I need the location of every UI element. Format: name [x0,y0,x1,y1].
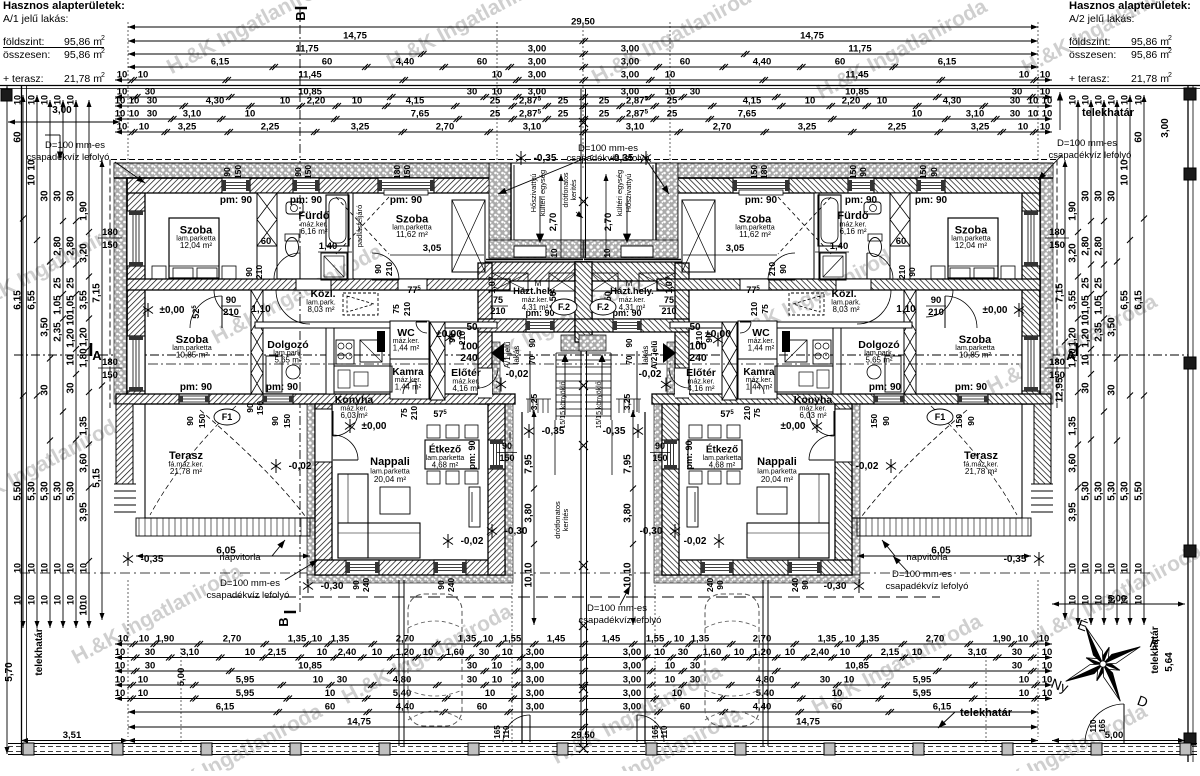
svg-text:+ terasz:: + terasz: [1069,73,1110,85]
svg-text:10: 10 [1081,354,1092,366]
svg-text:3,20: 3,20 [1068,243,1079,263]
svg-text:3,10: 3,10 [523,122,542,133]
svg-text:4,40: 4,40 [396,57,415,68]
svg-text:75: 75 [399,408,409,418]
svg-text:10: 10 [1068,563,1078,573]
svg-text:90: 90 [931,295,942,306]
svg-text:12,04 m²: 12,04 m² [180,241,213,250]
svg-text:6,03 m²: 6,03 m² [799,411,826,420]
svg-text:240: 240 [446,578,456,592]
svg-text:10,85 m²: 10,85 m² [959,351,992,360]
svg-text:10: 10 [138,675,149,686]
svg-text:30: 30 [1012,647,1023,658]
svg-text:210: 210 [928,307,944,318]
svg-text:10,10: 10,10 [524,562,535,587]
svg-text:drótfonatos: drótfonatos [563,172,570,208]
svg-text:3,25: 3,25 [351,122,370,133]
svg-text:10: 10 [1028,96,1039,107]
svg-text:F.2: F.2 [597,302,609,312]
svg-text:3,25: 3,25 [178,122,197,133]
svg-text:5,30: 5,30 [1094,481,1105,501]
svg-text:2,70: 2,70 [436,122,455,133]
svg-text:4,68 m²: 4,68 m² [709,461,736,470]
svg-text:10: 10 [13,595,23,605]
svg-text:210: 210 [384,262,394,276]
svg-text:10: 10 [1068,95,1078,105]
svg-text:100: 100 [460,341,478,353]
svg-text:30: 30 [147,96,158,107]
svg-text:2,70: 2,70 [548,213,559,232]
svg-text:1,35: 1,35 [861,634,880,645]
svg-text:90: 90 [351,580,361,590]
svg-text:2,20: 2,20 [842,96,861,107]
svg-text:150: 150 [749,165,759,179]
svg-text:A/2 jelű: A/2 jelű [650,341,659,370]
svg-text:2,35: 2,35 [53,322,64,342]
svg-text:1,20: 1,20 [1081,328,1092,348]
svg-text:90: 90 [226,295,237,306]
svg-text:3,00: 3,00 [528,44,547,55]
svg-text:30: 30 [678,647,689,658]
svg-text:60: 60 [13,131,24,143]
svg-text:10: 10 [805,96,816,107]
svg-text:1,07: 1,07 [664,276,674,294]
svg-text:180: 180 [102,227,118,238]
svg-text:90: 90 [502,441,512,451]
svg-text:210: 210 [223,307,239,318]
svg-text:4,30: 4,30 [206,96,225,107]
svg-text:3,00: 3,00 [623,688,642,699]
svg-text:3,60: 3,60 [1068,453,1079,473]
svg-text:3,00: 3,00 [623,675,642,686]
svg-text:10: 10 [1094,563,1104,573]
svg-text:90: 90 [293,167,303,177]
svg-text:180: 180 [102,357,118,368]
svg-text:25: 25 [53,277,64,289]
svg-text:D=100 mm-es: D=100 mm-es [587,603,647,614]
svg-text:10: 10 [325,688,336,699]
svg-text:75: 75 [664,295,674,305]
svg-text:25: 25 [66,277,77,289]
svg-text:Étkező: Étkező [429,443,461,456]
svg-text:90: 90 [966,416,976,426]
svg-text:10: 10 [1018,122,1029,133]
svg-text:60: 60 [325,702,336,713]
svg-text:lakás: lakás [641,346,650,365]
svg-text:1,45: 1,45 [547,634,566,645]
svg-text:3,10: 3,10 [966,109,985,120]
svg-text:2,25: 2,25 [261,122,280,133]
svg-text:150: 150 [102,370,118,381]
svg-text:3,05: 3,05 [726,243,745,254]
svg-text:3,25: 3,25 [798,122,817,133]
svg-text:1,07: 1,07 [487,276,497,294]
svg-text:25: 25 [667,96,678,107]
svg-text:14,75: 14,75 [800,31,824,42]
svg-text:2,70: 2,70 [603,213,614,232]
svg-text:10: 10 [115,661,126,672]
svg-text:150: 150 [499,453,514,463]
svg-text:2,70: 2,70 [223,634,242,645]
svg-text:2,25: 2,25 [888,122,907,133]
svg-text:90: 90 [778,264,788,274]
svg-text:3,00: 3,00 [528,57,547,68]
svg-text:6,16 m²: 6,16 m² [839,227,866,236]
svg-text:3,00: 3,00 [526,675,545,686]
svg-text:10: 10 [674,634,685,645]
svg-text:1,40: 1,40 [830,241,849,252]
svg-text:90: 90 [245,403,255,413]
svg-text:2: 2 [101,35,105,42]
svg-text:60: 60 [477,57,488,68]
svg-text:95,86 m: 95,86 m [64,49,102,61]
svg-text:20,04 m²: 20,04 m² [374,475,407,484]
svg-text:10: 10 [1081,563,1091,573]
svg-text:1,05: 1,05 [53,295,64,315]
svg-text:29,50: 29,50 [571,730,595,741]
svg-text:60: 60 [896,236,907,247]
svg-text:10: 10 [66,95,76,105]
svg-text:10: 10 [1042,109,1053,120]
svg-text:5,30: 5,30 [53,481,64,501]
svg-text:pm: 90: pm: 90 [180,382,213,393]
svg-text:10: 10 [492,70,503,81]
svg-text:10: 10 [1019,675,1030,686]
svg-text:30: 30 [690,661,701,672]
svg-text:240: 240 [460,352,478,364]
svg-text:10: 10 [313,675,324,686]
svg-text:150: 150 [197,414,207,428]
svg-text:30: 30 [145,647,156,658]
svg-text:pm: 90: pm: 90 [525,308,554,318]
svg-text:-0,02: -0,02 [684,536,707,547]
svg-text:25: 25 [599,109,610,120]
svg-text:3,25: 3,25 [971,122,990,133]
svg-text:75: 75 [493,295,503,305]
svg-text:50: 50 [466,322,478,333]
svg-text:11,45: 11,45 [298,70,322,81]
svg-text:10: 10 [665,675,676,686]
svg-text:5,70: 5,70 [4,662,15,682]
svg-text:10: 10 [1120,563,1130,573]
svg-text:10: 10 [485,688,496,699]
svg-text:3,20: 3,20 [79,243,90,263]
svg-text:10: 10 [1081,314,1092,326]
svg-text:150: 150 [954,414,964,428]
svg-text:240: 240 [705,578,715,592]
svg-text:1,10: 1,10 [251,304,271,315]
svg-text:5,30: 5,30 [1107,481,1118,501]
svg-text:150: 150 [102,240,118,251]
svg-text:3,60: 3,60 [79,453,90,473]
svg-text:25: 25 [558,109,569,120]
svg-text:10: 10 [139,122,150,133]
svg-text:30: 30 [1107,190,1118,202]
svg-text:50: 50 [689,322,701,333]
svg-text:10: 10 [372,647,383,658]
svg-text:D=100 mm-es: D=100 mm-es [45,140,105,151]
svg-text:10: 10 [665,661,676,672]
svg-text:150: 150 [869,414,879,428]
svg-text:3,00: 3,00 [621,70,640,81]
svg-text:F1: F1 [222,412,233,422]
svg-text:75: 75 [391,304,401,314]
svg-text:30: 30 [53,190,64,202]
svg-text:180: 180 [1049,227,1065,238]
svg-text:3,10: 3,10 [626,122,645,133]
svg-text:210: 210 [490,306,505,316]
svg-text:4,30: 4,30 [943,96,962,107]
svg-text:240: 240 [790,578,800,592]
svg-text:10: 10 [117,70,128,81]
svg-text:-0,30: -0,30 [321,581,344,592]
svg-text:70: 70 [625,355,634,364]
svg-text:30: 30 [1010,109,1021,120]
svg-text:90: 90 [929,167,939,177]
svg-text:150: 150 [1049,370,1065,381]
svg-text:3,05: 3,05 [423,243,442,254]
svg-text:2,80: 2,80 [66,236,77,256]
svg-text:10: 10 [423,647,434,658]
svg-text:10: 10 [832,688,843,699]
svg-text:10: 10 [317,647,328,658]
svg-text:10: 10 [1134,563,1144,573]
svg-text:90: 90 [373,264,383,274]
svg-text:6,55: 6,55 [1120,290,1131,310]
svg-text:25: 25 [1094,277,1105,289]
svg-text:D=100 mm-es: D=100 mm-es [220,578,280,589]
svg-text:-0,02: -0,02 [289,461,312,472]
svg-text:1,60: 1,60 [703,647,722,658]
svg-text:3,95: 3,95 [79,502,90,522]
svg-text:10: 10 [27,174,38,186]
svg-text:10: 10 [1120,174,1131,186]
svg-text:180: 180 [759,165,769,179]
svg-text:pm: 90: pm: 90 [266,382,299,393]
svg-text:3,00: 3,00 [526,661,545,672]
svg-text:A/1 jelű lakás:: A/1 jelű lakás: [3,13,68,25]
svg-text:pm: 90: pm: 90 [467,440,477,469]
svg-text:90: 90 [858,167,868,177]
svg-text:3,50: 3,50 [40,317,51,337]
svg-text:2: 2 [1168,35,1172,42]
svg-text:180: 180 [1049,357,1065,368]
svg-text:10: 10 [550,248,559,257]
svg-text:95,86 m: 95,86 m [1131,36,1169,48]
svg-text:10: 10 [40,95,50,105]
svg-text:2,15: 2,15 [268,647,287,658]
svg-text:csapadékvíz lefolyó: csapadékvíz lefolyó [886,581,969,592]
svg-text:20,04 m²: 20,04 m² [761,475,794,484]
svg-text:29,50: 29,50 [571,17,595,28]
svg-text:5,30: 5,30 [1120,481,1131,501]
svg-text:1,35: 1,35 [331,634,350,645]
svg-text:210: 210 [254,265,264,279]
svg-text:150: 150 [918,165,928,179]
svg-text:5,95: 5,95 [236,688,255,699]
svg-text:10: 10 [312,634,323,645]
svg-text:30: 30 [1081,190,1092,202]
svg-text:60: 60 [680,702,691,713]
svg-text:150: 150 [848,165,858,179]
svg-text:3,25: 3,25 [622,393,632,410]
svg-text:210: 210 [897,265,907,279]
svg-text:10: 10 [115,688,126,699]
svg-text:150: 150 [233,165,243,179]
svg-text:A/2 jelű lakás:: A/2 jelű lakás: [1069,13,1134,25]
svg-text:10: 10 [129,109,140,120]
svg-text:10: 10 [1134,595,1144,605]
svg-text:csapadékvíz lefolyó: csapadékvíz lefolyó [207,590,290,601]
svg-text:60: 60 [832,702,843,713]
svg-text:60: 60 [322,57,333,68]
svg-text:10: 10 [27,595,37,605]
svg-text:10: 10 [53,595,63,605]
svg-text:10: 10 [66,595,76,605]
svg-text:25: 25 [490,96,501,107]
svg-text:60: 60 [261,236,272,247]
svg-text:7,15: 7,15 [1055,283,1066,303]
svg-text:90: 90 [800,580,810,590]
svg-text:3,10: 3,10 [181,647,200,658]
svg-text:210: 210 [742,406,752,420]
svg-text:6,15: 6,15 [933,702,952,713]
svg-text:2: 2 [1168,72,1172,79]
svg-text:10: 10 [245,647,256,658]
svg-text:30: 30 [1081,382,1092,394]
svg-text:10: 10 [1028,109,1039,120]
svg-text:3,00: 3,00 [526,702,545,713]
svg-text:-0,30: -0,30 [640,526,663,537]
svg-text:90: 90 [881,416,891,426]
svg-text:30: 30 [1107,384,1118,396]
svg-text:10: 10 [1040,70,1051,81]
svg-text:-0,35: -0,35 [542,426,565,437]
svg-text:7,65: 7,65 [411,109,430,120]
svg-text:10: 10 [1107,95,1117,105]
svg-text:3,10: 3,10 [968,647,987,658]
svg-text:10: 10 [1018,634,1029,645]
svg-text:60: 60 [1134,131,1145,143]
svg-text:7,65: 7,65 [738,109,757,120]
svg-text:F.2: F.2 [558,302,570,312]
svg-text:1,35: 1,35 [458,634,477,645]
svg-text:2,15: 2,15 [881,647,900,658]
svg-text:3,25: 3,25 [529,393,539,410]
svg-text:1,10: 1,10 [896,304,916,315]
svg-text:telekhatár: telekhatár [960,707,1013,719]
svg-text:2,35: 2,35 [1094,322,1105,342]
svg-text:6,15: 6,15 [211,57,230,68]
svg-text:210: 210 [767,262,777,276]
svg-text:10: 10 [483,634,494,645]
svg-text:10: 10 [352,96,363,107]
svg-text:-0,35: -0,35 [603,426,626,437]
svg-text:F1: F1 [935,412,946,422]
svg-text:3,00: 3,00 [623,647,642,658]
svg-text:21,78 m: 21,78 m [64,73,102,85]
svg-text:10: 10 [66,314,77,326]
svg-text:5,15: 5,15 [92,468,103,488]
svg-text:10: 10 [785,647,796,658]
svg-text:10: 10 [115,109,126,120]
svg-text:3,00: 3,00 [526,647,545,658]
svg-text:3,55: 3,55 [1068,290,1079,310]
svg-text:5,95: 5,95 [913,688,932,699]
svg-text:2,40: 2,40 [338,647,357,658]
svg-text:90: 90 [907,267,917,277]
svg-text:10: 10 [1081,595,1091,605]
svg-text:11,75: 11,75 [295,44,319,55]
svg-text:30: 30 [1010,96,1021,107]
svg-text:1,35: 1,35 [288,634,307,645]
svg-text:5,30: 5,30 [1081,481,1092,501]
svg-text:5,30: 5,30 [66,481,77,501]
svg-text:10: 10 [27,95,37,105]
svg-text:3,00: 3,00 [52,105,72,116]
svg-text:165: 165 [1098,719,1107,733]
svg-text:1,20: 1,20 [1068,327,1079,347]
svg-text:3,80: 3,80 [623,503,634,523]
svg-text:5,95: 5,95 [913,675,932,686]
svg-text:10: 10 [1094,595,1104,605]
svg-text:60: 60 [477,702,488,713]
svg-text:1,90: 1,90 [156,634,175,645]
svg-text:M: M [626,279,633,288]
svg-text:10: 10 [1120,95,1130,105]
svg-text:3,55: 3,55 [79,290,90,310]
svg-text:165: 165 [493,725,502,739]
svg-text:6,15: 6,15 [13,290,24,310]
svg-text:10: 10 [1019,688,1030,699]
svg-text:telekhatár: telekhatár [1082,107,1135,119]
svg-text:7,15: 7,15 [92,283,103,303]
svg-text:3,00: 3,00 [1160,118,1171,138]
svg-text:10: 10 [40,563,50,573]
svg-text:padlásfeljáró: padlásfeljáró [355,205,364,248]
svg-text:30: 30 [467,87,478,98]
svg-text:25: 25 [599,96,610,107]
svg-text:-0,02: -0,02 [856,461,879,472]
svg-text:90: 90 [185,416,195,426]
svg-text:-0,30: -0,30 [824,581,847,592]
svg-text:14,75: 14,75 [347,717,371,728]
svg-text:11,62 m²: 11,62 m² [739,230,771,239]
svg-text:6,15: 6,15 [1134,290,1145,310]
svg-text:4,68 m²: 4,68 m² [432,461,459,470]
svg-text:kerítés: kerítés [571,179,578,201]
svg-text:10: 10 [139,634,150,645]
svg-text:10: 10 [79,595,89,605]
svg-text:1,90: 1,90 [79,201,90,221]
svg-text:240: 240 [361,578,371,592]
svg-text:110: 110 [660,725,669,738]
svg-text:8,03 m²: 8,03 m² [307,305,334,314]
svg-text:4,15: 4,15 [406,96,425,107]
svg-text:150: 150 [652,453,667,463]
svg-text:10: 10 [655,647,666,658]
svg-text:75: 75 [760,304,770,314]
svg-text:10: 10 [79,563,89,573]
svg-text:210: 210 [409,406,419,420]
svg-text:1,35: 1,35 [1068,416,1079,436]
svg-text:10: 10 [1081,95,1091,105]
svg-text:1,44 m²: 1,44 m² [746,383,773,392]
svg-text:±0,00: ±0,00 [160,305,185,316]
svg-text:1,55: 1,55 [646,634,665,645]
svg-text:3,00: 3,00 [621,44,640,55]
svg-text:21,78 m²: 21,78 m² [170,467,203,476]
